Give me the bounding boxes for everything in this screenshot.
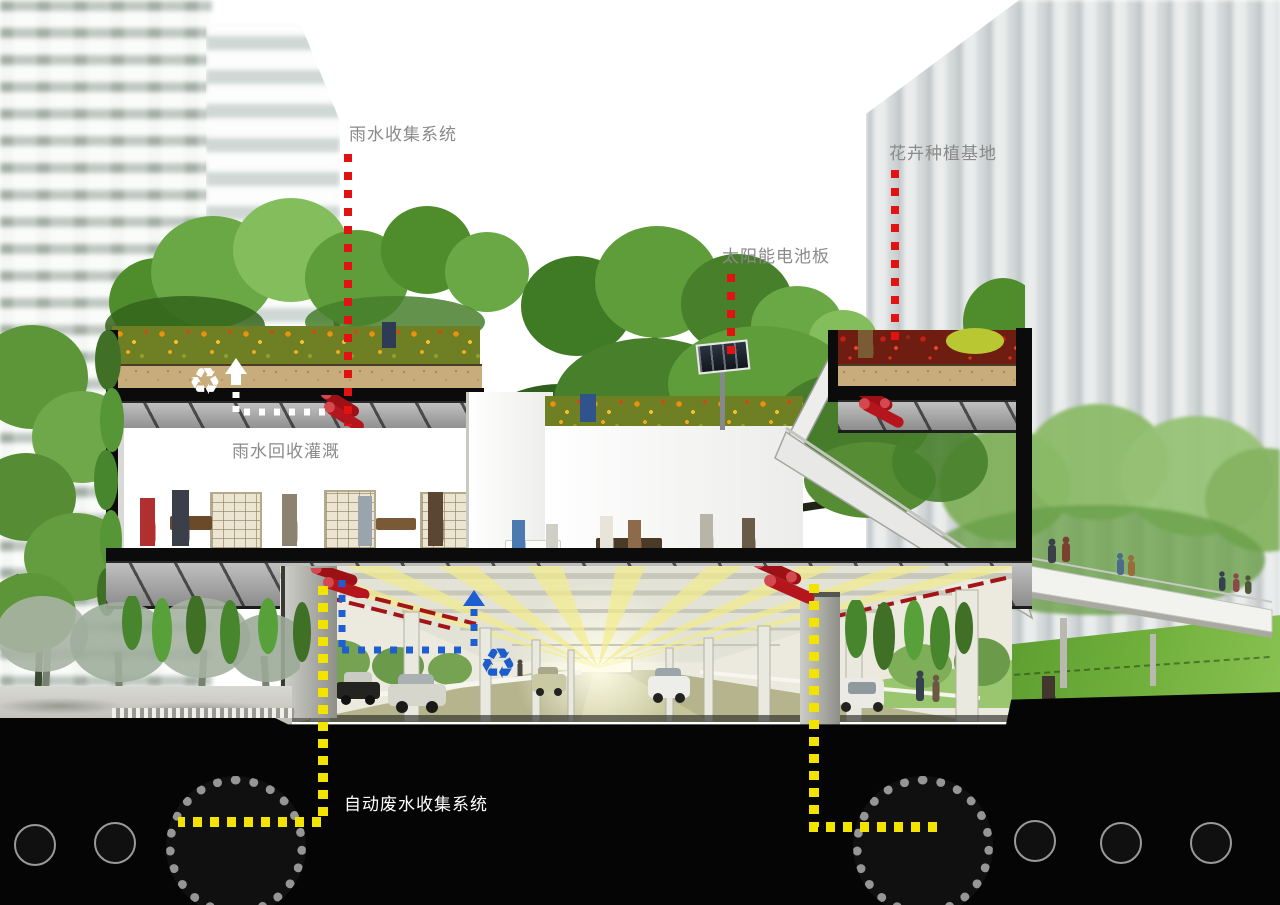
solar-panel-pole (720, 366, 725, 430)
deck-support-column (800, 592, 840, 727)
right-roof-left-edge (828, 330, 838, 402)
underground-pipe-small (1100, 822, 1142, 864)
red-pipes-deck-left (308, 568, 378, 598)
underground-pipe-large-right (853, 776, 993, 905)
left-roof-slab (106, 388, 484, 401)
folding-screen (210, 492, 262, 550)
red-pipes-right-roof (842, 396, 930, 432)
courtyard-wall (466, 392, 553, 560)
person-figure (282, 494, 297, 546)
hanging-vines-right (840, 600, 975, 696)
right-roof-yellow-bush (946, 328, 1004, 354)
person-figure (428, 492, 443, 546)
eco-city-section-diagram: ♻ ♻ 雨水收集系统 花卉种植基地 太阳能电池板 雨水回收灌溉 自动废水收集系统 (0, 0, 1280, 905)
underground-pipe-large-left (166, 776, 306, 905)
underground-pipe-small (94, 822, 136, 864)
left-roof-soil-layer (110, 364, 482, 391)
underground-pipe-small (1014, 820, 1056, 862)
label-wastewater-system: 自动废水收集系统 (344, 790, 488, 815)
person-figure (358, 496, 372, 546)
person-figure (580, 394, 596, 422)
label-rainwater-collection: 雨水收集系统 (349, 120, 457, 145)
left-green-roof-flowerbed (112, 326, 480, 366)
red-pipes-deck-right (745, 566, 829, 608)
solar-panel-icon (696, 339, 751, 374)
person-figure (172, 490, 189, 546)
label-rainwater-irrigation: 雨水回收灌溉 (232, 437, 340, 462)
hanging-vines-left (118, 596, 318, 700)
label-flower-planting-base: 花卉种植基地 (889, 139, 997, 164)
person-figure (140, 498, 155, 546)
tea-table (376, 518, 416, 530)
curb-strip (112, 708, 294, 718)
label-solar-panel: 太阳能电池板 (722, 242, 830, 267)
underground-pipe-small (14, 824, 56, 866)
deck-floor-slab (106, 548, 1032, 561)
underground-pipe-small (1190, 822, 1232, 864)
person-figure (382, 322, 396, 348)
person-figure (858, 330, 873, 358)
